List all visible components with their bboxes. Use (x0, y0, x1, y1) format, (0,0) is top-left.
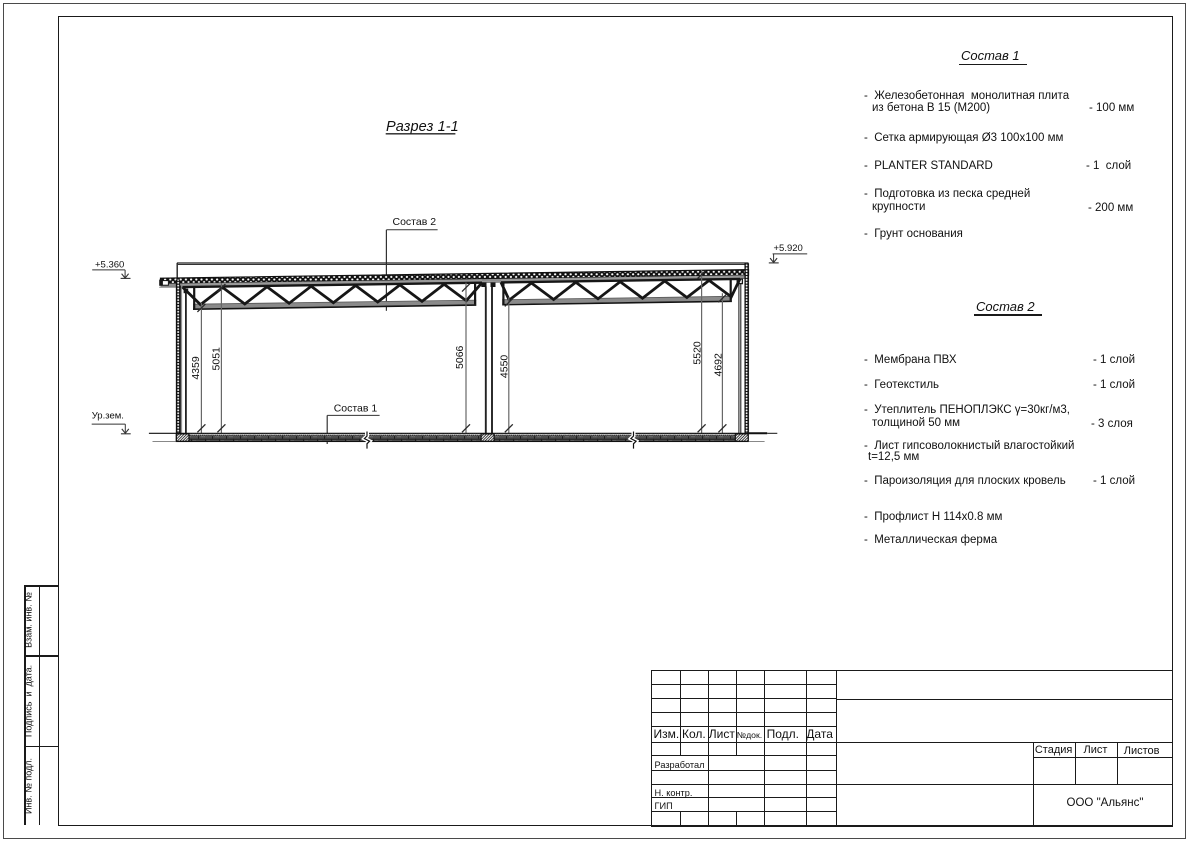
svg-text:5066: 5066 (454, 345, 466, 369)
svg-text:4550: 4550 (499, 355, 511, 379)
svg-text:4359: 4359 (190, 356, 202, 380)
svg-text:Состав 1: Состав 1 (334, 402, 378, 414)
svg-text:5051: 5051 (210, 347, 222, 371)
svg-text:5520: 5520 (692, 341, 704, 365)
svg-text:Ур.зем.: Ур.зем. (92, 410, 124, 421)
svg-text:4692: 4692 (712, 353, 724, 377)
svg-text:+5.920: +5.920 (774, 243, 803, 254)
svg-text:Состав 2: Состав 2 (393, 216, 437, 228)
svg-text:+5.360: +5.360 (95, 259, 124, 270)
svg-text:Разрез 1-1: Разрез 1-1 (386, 119, 459, 135)
